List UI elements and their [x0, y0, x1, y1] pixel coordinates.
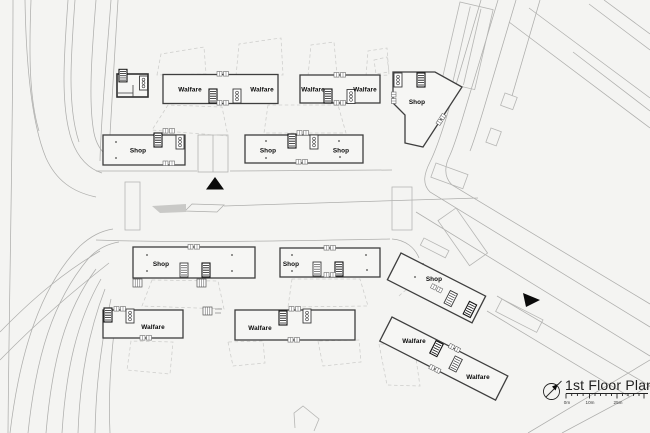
building-walfare-south-east: Walfare Walfare — [379, 314, 509, 402]
building-shop-north-a: Shop — [103, 129, 185, 166]
building-label: Walfare — [178, 87, 202, 94]
floor-plan-canvas: Walfare Walfare Walfare Walfare Shop Sho… — [0, 0, 650, 433]
building-label: Walfare — [301, 87, 325, 94]
plaza-arrow-icon — [206, 177, 224, 190]
floor-plan-page: Walfare Walfare Walfare Walfare Shop Sho… — [0, 0, 650, 433]
building-walfare-north-b: Walfare Walfare — [300, 73, 380, 106]
title-block: 1st Floor Plan 0m 10m 25m — [544, 377, 650, 405]
building-shop-north-east: Shop — [391, 72, 462, 147]
scale-label: 10m — [586, 400, 595, 405]
building-label: Shop — [409, 99, 425, 106]
scale-bar: 0m 10m 25m — [564, 394, 648, 406]
road-lines — [96, 0, 650, 433]
building-label: Walfare — [250, 87, 274, 94]
scale-label: 25m — [614, 400, 623, 405]
building-walfare-north-a: Walfare Walfare — [163, 72, 278, 106]
rail-lines — [0, 0, 119, 433]
building-walfare-south-b: Walfare — [235, 307, 355, 343]
building-label: Shop — [153, 261, 169, 268]
building-label: Walfare — [248, 325, 272, 332]
building-shop-south-east: Shop — [387, 253, 485, 323]
road-arrow-icon — [523, 293, 540, 307]
building-label: Shop — [260, 148, 276, 155]
building-label: Walfare — [466, 374, 490, 381]
building-label: Shop — [333, 148, 349, 155]
building-label: Walfare — [141, 324, 165, 331]
building-shop-north-b: Shop Shop — [245, 131, 363, 165]
building-shop-south-b: Shop — [280, 246, 380, 278]
plan-title: 1st Floor Plan — [565, 377, 650, 393]
building-label: Walfare — [402, 338, 426, 345]
scale-label: 0m — [564, 400, 571, 405]
compass-icon — [544, 381, 562, 400]
exterior-stair-glyph — [203, 307, 222, 315]
building-label: Shop — [426, 276, 442, 283]
building-label: Shop — [130, 148, 146, 155]
building-label: Shop — [283, 261, 299, 268]
building-label: Walfare — [353, 87, 377, 94]
building-shop-south-a: Shop — [133, 245, 255, 288]
building-walfare-south-a: Walfare — [103, 307, 183, 341]
building-utility-north-west — [117, 69, 148, 97]
